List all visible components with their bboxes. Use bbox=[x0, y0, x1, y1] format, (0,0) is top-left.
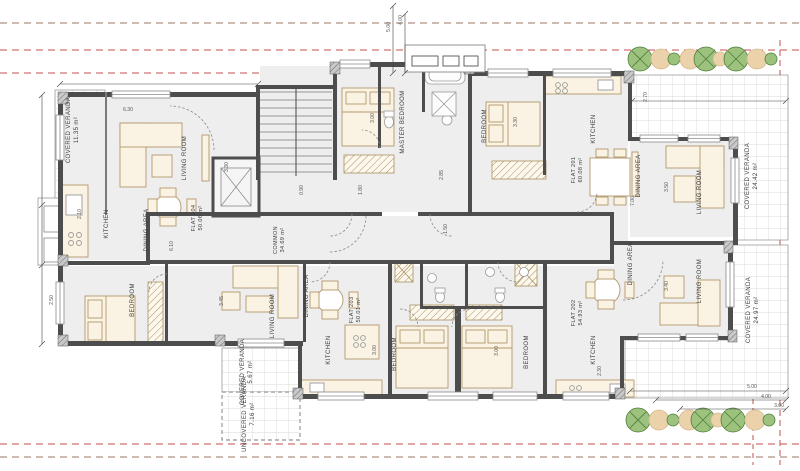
dim-label: 5.00 bbox=[386, 22, 393, 32]
dim-label: 1.50 bbox=[443, 224, 450, 234]
elevator bbox=[213, 158, 259, 216]
dim-label: 2.50 bbox=[49, 295, 56, 305]
dim-label: 4.00 bbox=[761, 394, 771, 401]
dim-label: 3.00 bbox=[774, 403, 784, 410]
label-master-bedroom: MASTER BEDROOM bbox=[400, 90, 408, 153]
dim-label: 3.30 bbox=[224, 162, 231, 172]
label-kitchen-202: KITCHEN bbox=[591, 335, 599, 364]
label-veranda-bl-uncovered: UNCOVERED VERANDA 7.16 m² bbox=[242, 376, 258, 452]
dim-label: 3.30 bbox=[513, 117, 520, 127]
dim-label: 6.10 bbox=[169, 241, 176, 251]
label-kitchen-203: KITCHEN bbox=[326, 335, 334, 364]
label-kitchen-204: KITCHEN bbox=[104, 209, 112, 238]
label-flat-204: FLAT 204 50.06 m² bbox=[191, 205, 205, 232]
label-flat-201: FLAT 201 60.08 m² bbox=[571, 157, 585, 184]
label-flat-203: FLAT 203 50.01 m² bbox=[349, 297, 363, 324]
label-veranda-top-left: COVERED VERANDA 11.35 m² bbox=[66, 97, 82, 163]
label-kitchen-201: KITCHEN bbox=[591, 114, 599, 143]
label-dining-204: DINING AREA bbox=[144, 208, 152, 251]
label-veranda-bottom-right: COVERED VERANDA 24.97 m² bbox=[746, 277, 762, 343]
label-living-202: LIVING ROOM bbox=[697, 259, 705, 303]
dim-label: 2.85 bbox=[439, 170, 446, 180]
label-common: COMMON 34.69 m² bbox=[273, 226, 287, 254]
floor-plan-drawing bbox=[0, 0, 800, 471]
dim-label: 3.00 bbox=[370, 113, 377, 123]
label-dining-203: DINING AREA bbox=[304, 274, 312, 317]
tree-row-bottom bbox=[626, 408, 775, 432]
dim-label: 5.00 bbox=[747, 384, 757, 391]
planter-boxes bbox=[405, 45, 485, 72]
label-living-201: LIVING ROOM bbox=[697, 170, 705, 214]
tree-row-top bbox=[628, 47, 777, 71]
label-living-room-204: LIVING ROOM bbox=[182, 136, 190, 180]
label-bedroom-201: BEDROOM bbox=[482, 109, 490, 143]
label-bedroom-bottom-2: BEDROOM bbox=[524, 335, 532, 369]
dim-label: 3.40 bbox=[664, 281, 671, 291]
dim-label: 3.45 bbox=[219, 296, 226, 306]
dim-label: 3.00 bbox=[372, 345, 379, 355]
dim-label: 7.00 bbox=[630, 196, 637, 206]
dim-label: 2.30 bbox=[597, 366, 604, 376]
label-dining-201: DINING AREA bbox=[636, 154, 644, 197]
dim-label: 6.30 bbox=[123, 107, 133, 114]
dim-label: 0.90 bbox=[299, 185, 306, 195]
label-living-203: LIVING ROOM bbox=[270, 294, 278, 338]
label-flat-202: FLAT 202 54.93 m² bbox=[571, 300, 585, 327]
dim-label: 2.70 bbox=[643, 92, 650, 102]
dim-label: 3.00 bbox=[494, 346, 501, 356]
floor-plan: COVERED VERANDA 11.35 m² LIVING ROOM KIT… bbox=[0, 0, 800, 471]
label-bedroom-bottom-1: BEDROOM bbox=[392, 337, 400, 371]
label-dining-202: DINING AREA bbox=[628, 242, 636, 285]
dim-label: 2.10 bbox=[77, 209, 84, 219]
dim-label: 4.00 bbox=[398, 15, 405, 25]
dim-label: 3.50 bbox=[664, 182, 671, 192]
label-veranda-right: COVERED VERANDA 24.42 m² bbox=[745, 143, 761, 209]
label-bedroom-203: BEDROOM bbox=[130, 283, 138, 317]
dim-label: 1.80 bbox=[358, 185, 365, 195]
